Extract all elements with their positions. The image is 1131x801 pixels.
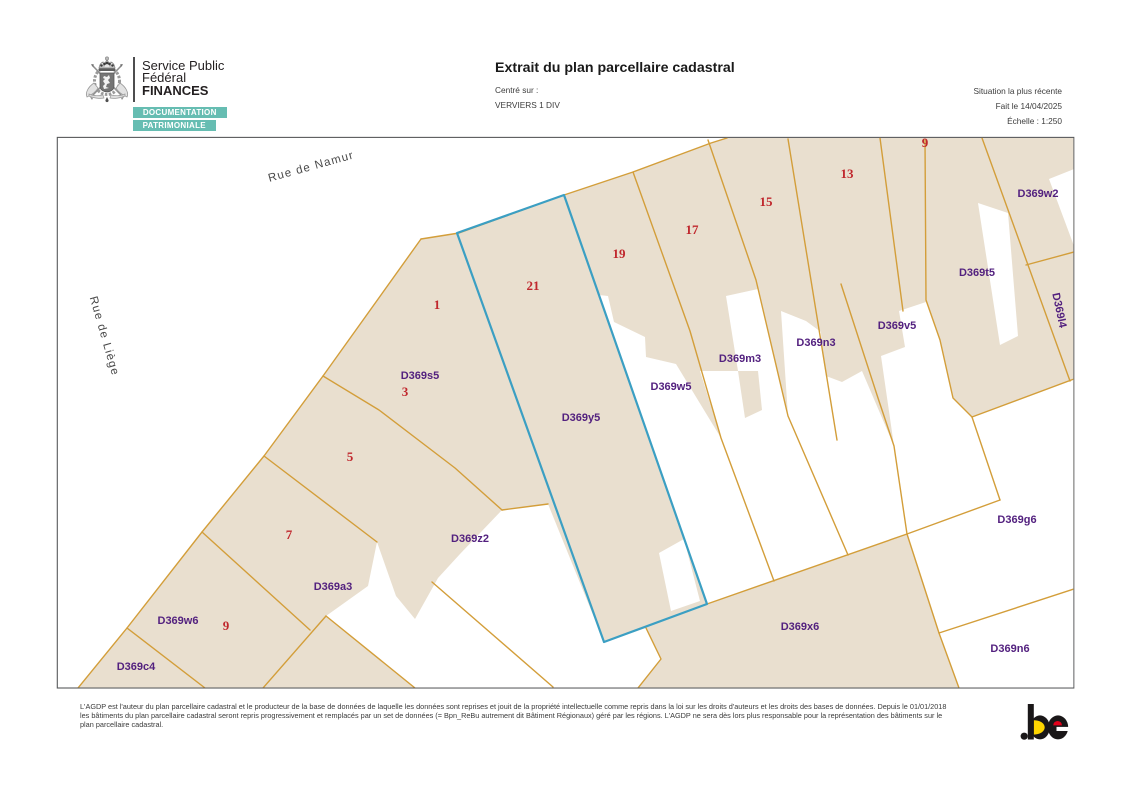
svg-text:D369n3: D369n3 <box>796 337 835 349</box>
svg-text:D369m3: D369m3 <box>719 353 761 365</box>
svg-text:1: 1 <box>434 297 441 312</box>
svg-text:3: 3 <box>402 384 409 399</box>
svg-text:D369w6: D369w6 <box>158 615 199 627</box>
svg-text:5: 5 <box>347 449 354 464</box>
svg-text:13: 13 <box>841 166 855 181</box>
svg-text:D369g6: D369g6 <box>997 514 1036 526</box>
svg-text:D369c4: D369c4 <box>117 661 156 673</box>
svg-text:D369w5: D369w5 <box>651 381 692 393</box>
svg-text:15: 15 <box>760 194 774 209</box>
svg-text:9: 9 <box>223 618 230 633</box>
svg-text:D369x6: D369x6 <box>781 621 820 633</box>
svg-text:D369n6: D369n6 <box>990 643 1029 655</box>
svg-text:21: 21 <box>527 278 540 293</box>
svg-text:7: 7 <box>286 527 293 542</box>
svg-text:D369z2: D369z2 <box>451 533 489 545</box>
svg-text:D369s5: D369s5 <box>401 370 440 382</box>
svg-text:D369a3: D369a3 <box>314 581 353 593</box>
svg-text:D369w2: D369w2 <box>1018 188 1059 200</box>
svg-text:D369v5: D369v5 <box>878 320 917 332</box>
svg-text:19: 19 <box>613 246 627 261</box>
svg-text:D369y5: D369y5 <box>562 412 601 424</box>
svg-text:17: 17 <box>686 222 700 237</box>
svg-text:D369t5: D369t5 <box>959 267 995 279</box>
